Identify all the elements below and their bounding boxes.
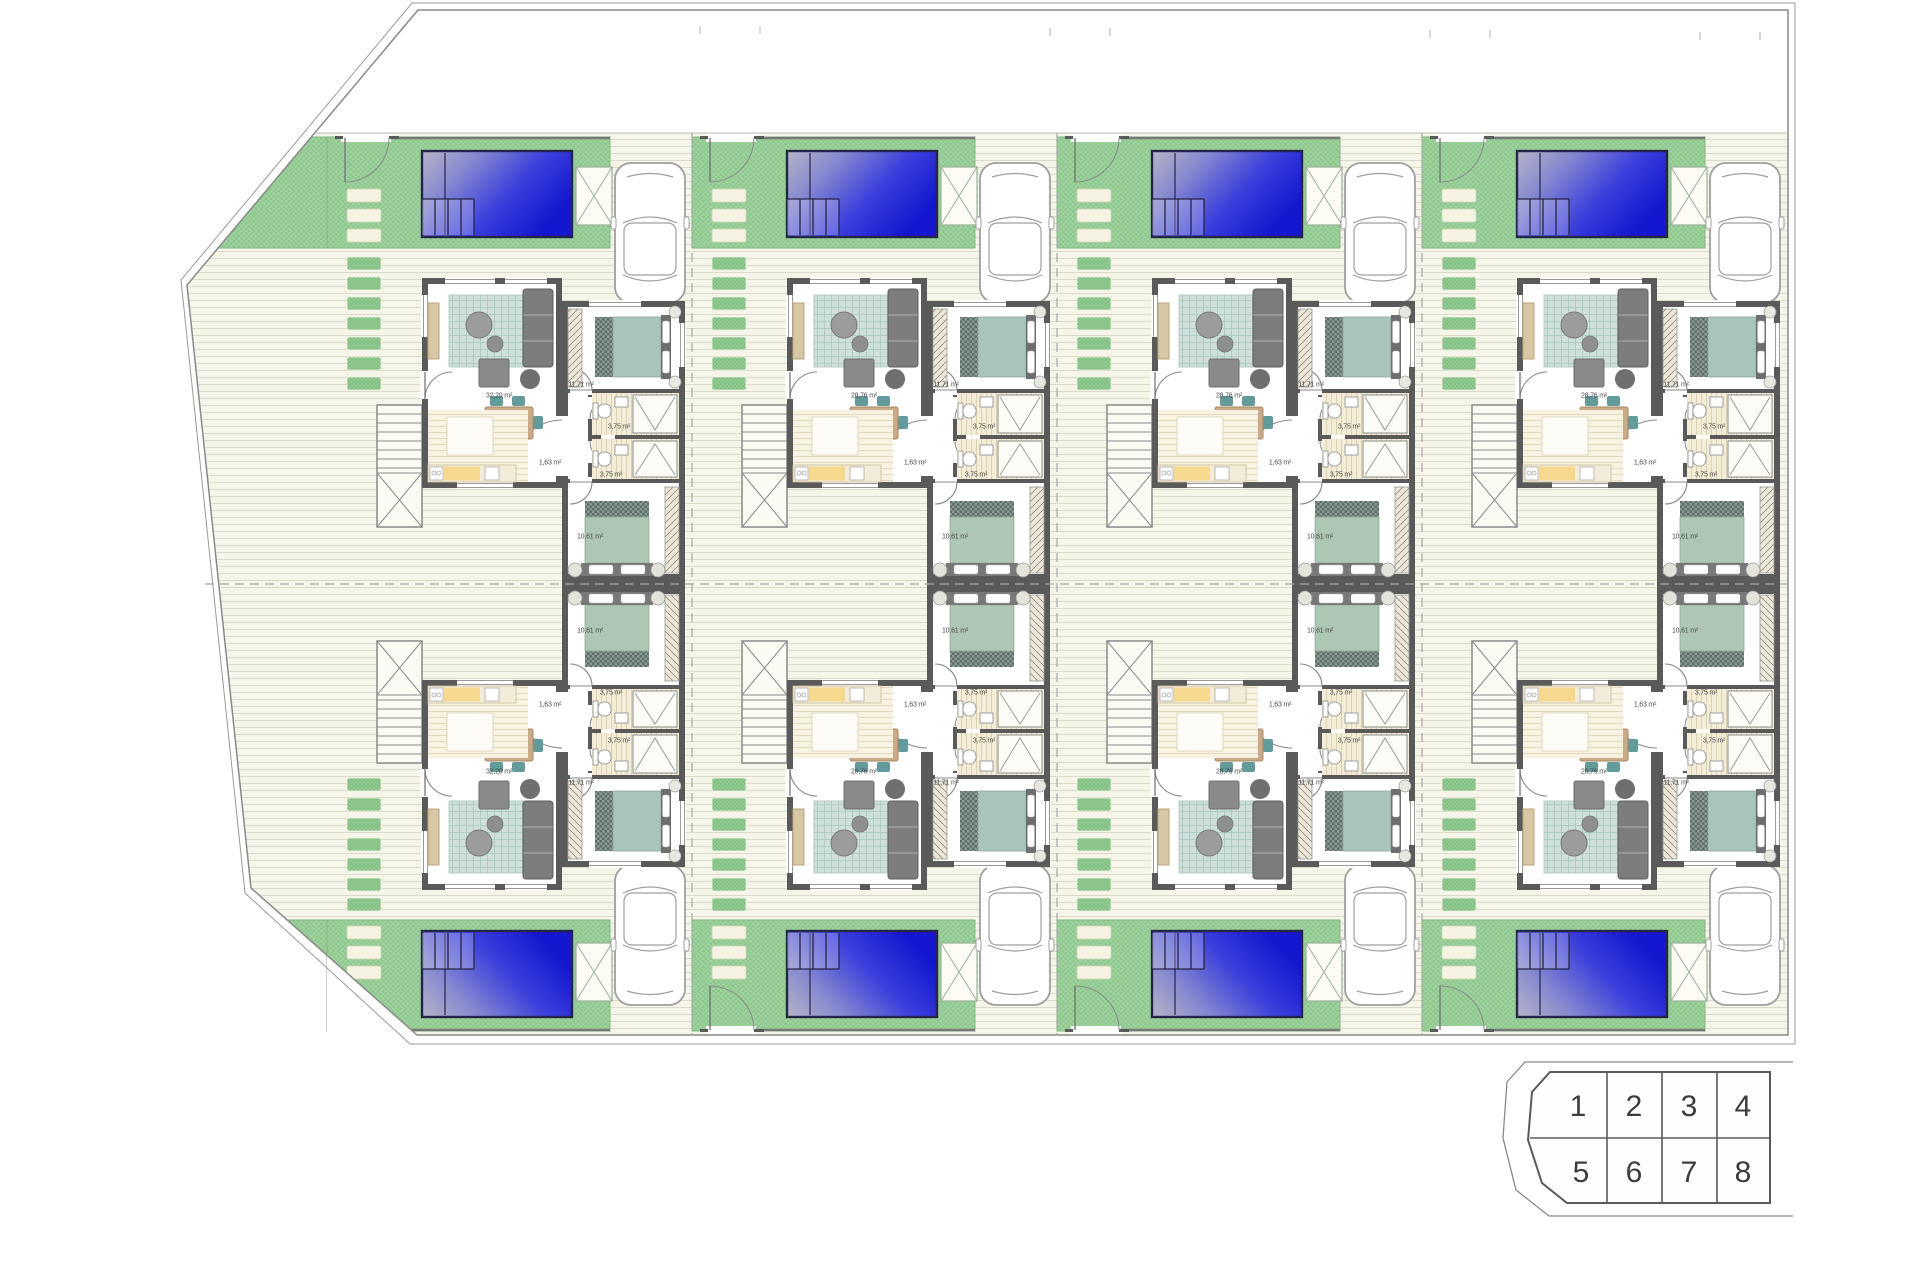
key-plan-cell-3: 3 xyxy=(1681,1090,1698,1123)
unit-5 xyxy=(327,584,692,1035)
unit-7 xyxy=(1057,584,1422,1035)
site-plan-drawing: 1 2 3 4 5 6 7 8 xyxy=(0,0,1920,1280)
unit-2 xyxy=(692,133,1057,584)
site-plan: 1 2 3 4 5 6 7 8 32,20 m²11,71 m²1,63 m²3… xyxy=(0,0,1920,1280)
unit-8 xyxy=(1422,584,1787,1035)
key-plan-cell-5: 5 xyxy=(1573,1156,1590,1189)
garden-wedge-unit-1 xyxy=(218,137,327,248)
survey-marks xyxy=(700,26,1760,40)
key-plan-cell-6: 6 xyxy=(1626,1156,1643,1189)
unit-6 xyxy=(692,584,1057,1035)
unit-4 xyxy=(1422,133,1787,584)
key-plan-cell-8: 8 xyxy=(1735,1156,1752,1189)
unit-3 xyxy=(1057,133,1422,584)
key-plan-cell-2: 2 xyxy=(1626,1090,1643,1123)
key-plan-cell-1: 1 xyxy=(1570,1090,1587,1123)
key-plan: 1 2 3 4 5 6 7 8 xyxy=(1503,1062,1793,1216)
key-plan-cell-4: 4 xyxy=(1735,1090,1752,1123)
key-plan-cell-7: 7 xyxy=(1681,1156,1698,1189)
unit-1 xyxy=(327,133,692,584)
